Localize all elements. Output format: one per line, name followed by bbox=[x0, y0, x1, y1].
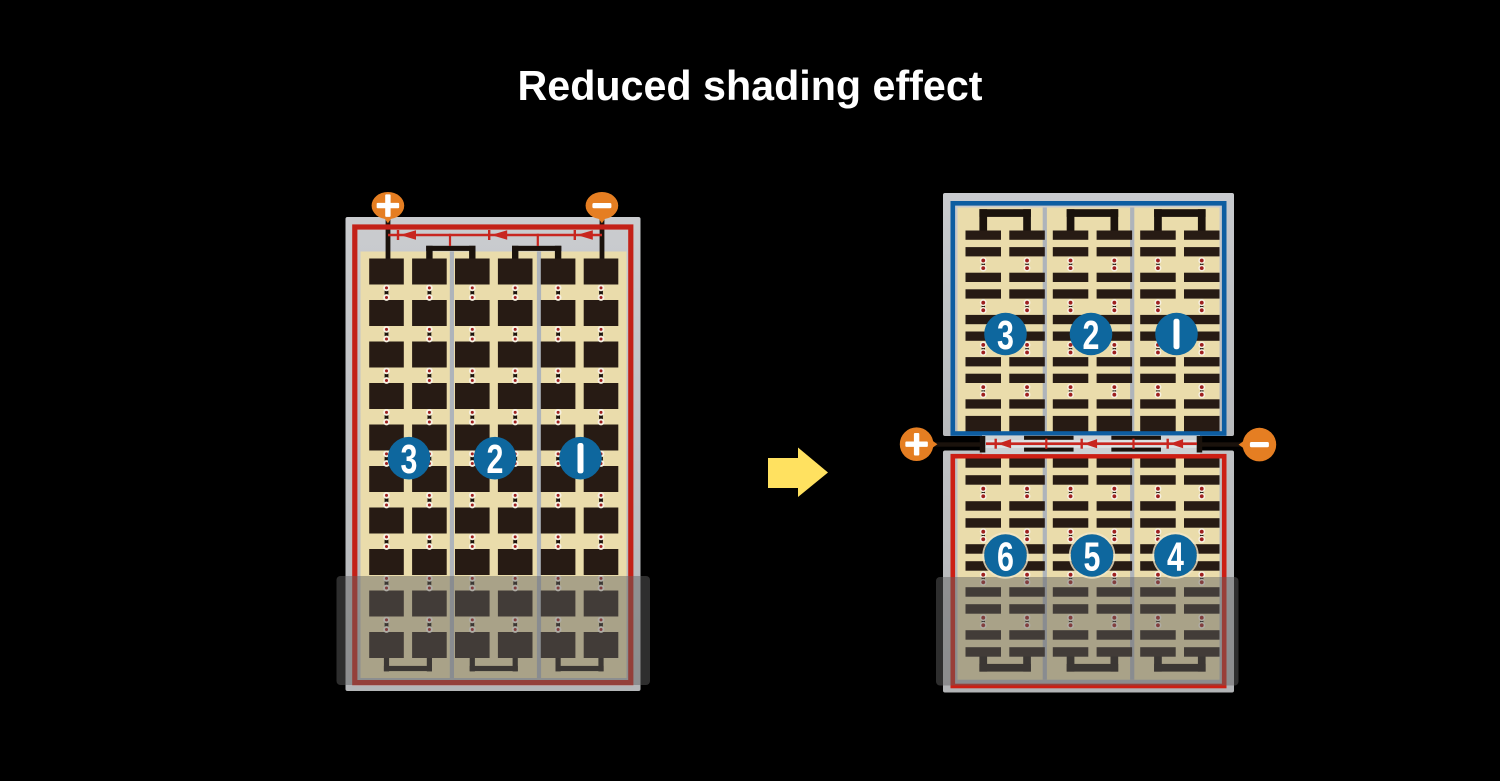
svg-text:6: 6 bbox=[997, 533, 1014, 580]
svg-text:5: 5 bbox=[1084, 533, 1101, 580]
svg-text:2: 2 bbox=[487, 436, 504, 483]
svg-text:3: 3 bbox=[401, 436, 418, 483]
svg-text:3: 3 bbox=[997, 312, 1014, 359]
svg-text:4: 4 bbox=[1167, 533, 1184, 580]
svg-text:Reduced shading effect: Reduced shading effect bbox=[518, 62, 983, 109]
svg-text:2: 2 bbox=[1083, 312, 1100, 359]
